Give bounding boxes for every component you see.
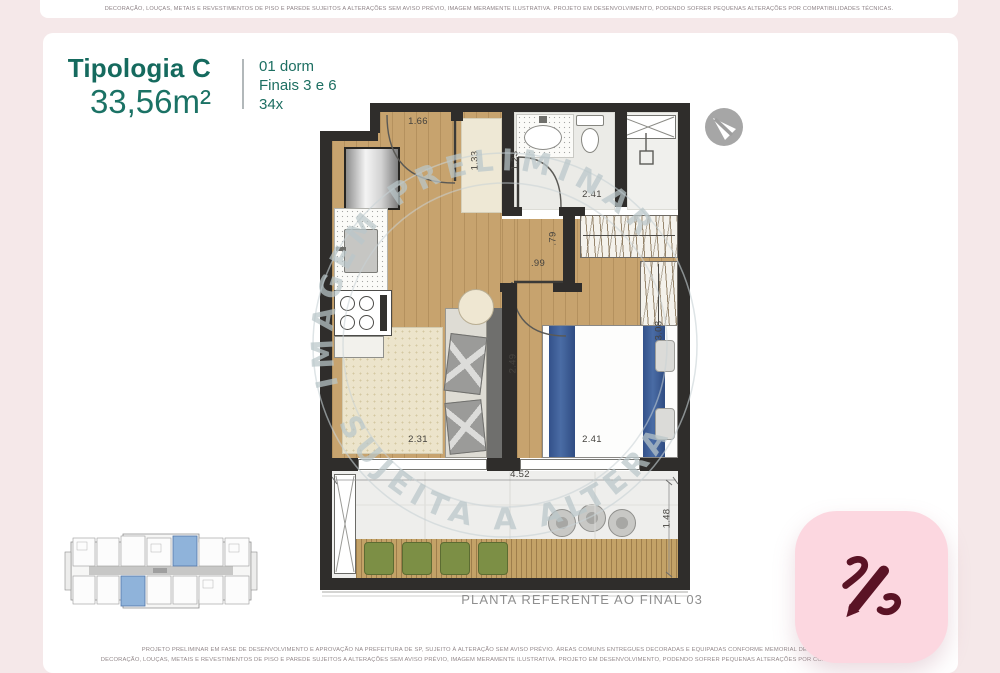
flyer-card: Tipologia C 33,56m² 01 dorm Finais 3 e 6…	[43, 33, 958, 673]
wall	[678, 103, 690, 590]
top-disclaimer-bar: DECORAÇÃO, LOUÇAS, METAIS E REVESTIMENTO…	[40, 0, 958, 18]
top-disclaimer-text: DECORAÇÃO, LOUÇAS, METAIS E REVESTIMENTO…	[105, 6, 894, 12]
keyplan-highlight-unit-bottom	[121, 576, 145, 606]
unit-area: 33,56m²	[61, 83, 211, 121]
page: { "top_bar": { "disclaimer": "DECORAÇÃO,…	[0, 0, 1000, 673]
dim-terrace-width: 4.52	[500, 469, 540, 480]
floor-plan: 1.66 1.33 1.23 2.41 .79 .99 2.49 2.31 2.…	[320, 103, 690, 598]
wall	[553, 283, 582, 292]
wall	[332, 458, 358, 471]
pen-squiggle-icon	[828, 543, 916, 631]
wall	[320, 131, 332, 590]
north-compass-icon	[702, 105, 746, 149]
wall	[502, 207, 522, 216]
dim-living-width: 2.31	[398, 434, 438, 445]
edit-signature-button[interactable]	[795, 511, 948, 663]
plan-caption: PLANTA REFERENTE AO FINAL 03	[343, 592, 703, 607]
keyplan	[63, 522, 259, 618]
wall	[370, 103, 690, 112]
title-block: Tipologia C 33,56m²	[61, 53, 211, 121]
dim-closet: 1.33	[470, 144, 481, 178]
typology-title: Tipologia C	[61, 53, 211, 83]
dim-bedroom-door: .99	[518, 258, 558, 269]
dim-living-depth: 2.49	[508, 347, 519, 381]
dim-bedroom-depth: 3.08	[654, 314, 665, 348]
wall	[451, 103, 463, 121]
dim-bath-length: 2.41	[572, 189, 612, 200]
wall	[615, 112, 627, 207]
info-finais: Finais 3 e 6	[259, 76, 337, 95]
wall	[370, 103, 380, 133]
keyplan-highlight-unit-top	[173, 536, 197, 566]
dim-terrace-depth: 1.48	[662, 502, 673, 536]
dim-entry: 1.66	[398, 116, 438, 127]
info-dorm: 01 dorm	[259, 57, 337, 76]
wall	[640, 458, 678, 471]
header-divider	[242, 59, 244, 109]
wall	[563, 207, 575, 287]
dim-bedroom-width: 2.41	[572, 434, 612, 445]
wall	[320, 578, 690, 590]
dim-bath-width: 1.23	[510, 144, 521, 178]
living-window	[358, 459, 487, 470]
footer-line-2: DECORAÇÃO, LOUÇAS, METAIS E REVESTIMENTO…	[58, 657, 948, 663]
dim-nook: .79	[548, 222, 559, 256]
